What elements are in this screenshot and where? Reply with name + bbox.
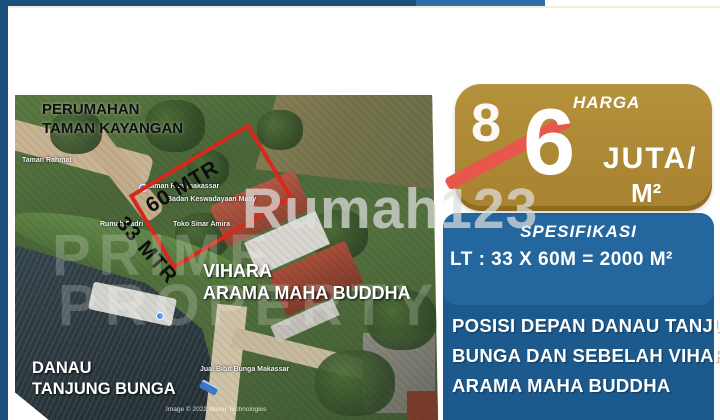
price-unit: JUTA/	[603, 142, 697, 176]
area-label: PERUMAHAN TAMAN KAYANGAN	[42, 100, 183, 138]
poi-label: Jual Bibit Bunga Makassar	[200, 366, 289, 373]
area-label-line2: TAMAN KAYANGAN	[42, 119, 183, 138]
land-size-value: LT : 33 X 60M = 2000 M²	[450, 249, 673, 271]
info-panel: SPESIFIKASI LT : 33 X 60M = 2000 M² POSI…	[443, 213, 714, 420]
agency-watermark-line2: PROPERTY	[58, 272, 441, 339]
description-line1: POSISI DEPAN DANAU TANJUNG	[452, 311, 720, 341]
lake-label-line2: TANJUNG BUNGA	[32, 379, 176, 400]
description-line3: ARAMA MAHA BUDDHA	[452, 371, 720, 401]
top-cream-line	[0, 6, 720, 8]
area-label-line1: PERUMAHAN	[42, 100, 183, 119]
lake-label: DANAU TANJUNG BUNGA	[32, 358, 176, 400]
map-attribution: Image © 2022 Maxar Technologies	[166, 406, 266, 413]
flyer-canvas: Taman Rahmat taman Riza makassar Badan K…	[0, 0, 720, 420]
position-description: POSISI DEPAN DANAU TANJUNG BUNGA DAN SEB…	[452, 311, 720, 401]
description-line2: BUNGA DAN SEBELAH VIHARA	[452, 341, 720, 371]
current-price: 6	[523, 96, 575, 188]
old-price: 8	[471, 92, 501, 154]
brand-watermark: Rumah123	[242, 176, 538, 242]
price-unit-m2: M²	[631, 178, 661, 209]
left-accent-bar	[0, 0, 8, 420]
poi-label: Taman Rahmat	[22, 157, 72, 164]
lake-label-line1: DANAU	[32, 358, 176, 379]
price-badge-title: HARGA	[573, 93, 640, 113]
